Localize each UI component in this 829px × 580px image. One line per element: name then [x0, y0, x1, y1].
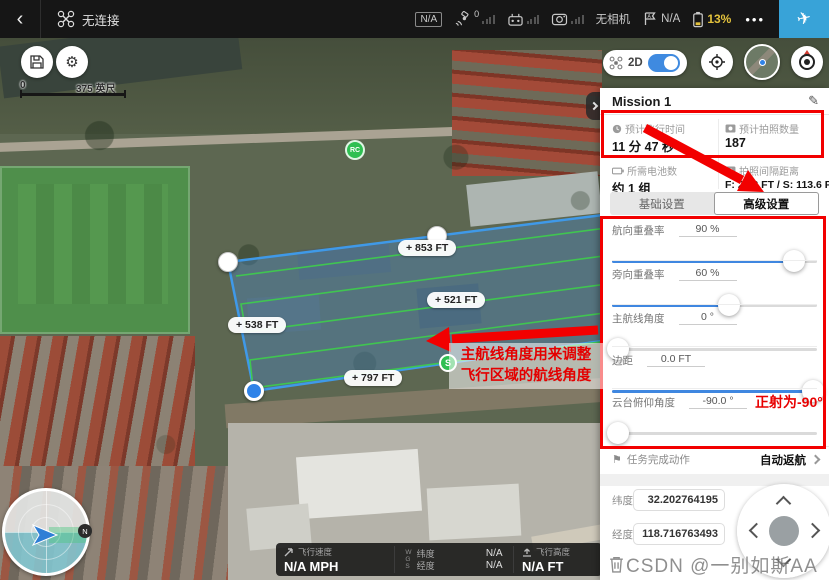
- telemetry-lng-value: N/A: [486, 560, 503, 572]
- divider: [612, 346, 817, 347]
- takeoff-button[interactable]: ✈: [779, 0, 829, 38]
- telemetry-speed: 飞行速度 N/A MPH: [276, 543, 394, 576]
- flight-mode-group: A N/A: [642, 11, 680, 27]
- position-nudge-pad: [737, 484, 829, 578]
- divider: [718, 119, 719, 189]
- locate-button[interactable]: [701, 46, 733, 78]
- telemetry-bar: 飞行速度 N/A MPH WGS 纬度N/A 经度N/A 飞行高度 N/A FT: [276, 543, 602, 576]
- speed-arrow-icon: [284, 547, 294, 557]
- divider-band: [600, 474, 829, 486]
- margin-input[interactable]: 0.0 FT: [647, 353, 705, 367]
- telemetry-coords: WGS 纬度N/A 经度N/A: [395, 543, 513, 576]
- map-2d-toggle[interactable]: [648, 54, 680, 72]
- minimap-position-dot: [759, 59, 766, 66]
- flag-icon: ⚑: [612, 453, 622, 466]
- crosshair-icon: [708, 53, 726, 71]
- front-overlap-input[interactable]: 90 %: [679, 223, 737, 237]
- photo-icon: [725, 166, 736, 175]
- gps-signal-bars: [482, 14, 495, 24]
- save-button[interactable]: [21, 46, 53, 78]
- camera-signal-group: [551, 12, 584, 26]
- route-start-marker: S: [439, 354, 457, 372]
- compass-orientation-button[interactable]: [791, 46, 823, 78]
- connection-status: 无连接: [82, 10, 120, 29]
- wgs-label: WGS: [405, 549, 411, 570]
- photo-count-label: 预计拍照数量: [725, 121, 799, 136]
- mission-header: Mission 1 ✎: [600, 88, 829, 115]
- route-angle-input[interactable]: 0 °: [679, 311, 737, 325]
- gimbal-annotation: 正射为-90°: [755, 392, 823, 412]
- gear-icon: ⚙: [65, 53, 78, 71]
- flight-time-value: 11 分 47 秒: [612, 136, 675, 155]
- camera-icon: [551, 12, 568, 26]
- setting-row-gimbal-pitch: 云台俯仰角度 -90.0 ° 正射为-90°: [600, 394, 829, 444]
- orientation-ring-icon: [799, 54, 815, 70]
- gps-signal-group: 0: [454, 11, 495, 28]
- flight-mode-value: N/A: [661, 13, 680, 25]
- tab-basic-settings[interactable]: 基础设置: [610, 192, 714, 215]
- chevron-right-icon: [589, 102, 597, 110]
- finish-action-label: 任务完成动作: [627, 452, 690, 467]
- rc-signal-bars: [527, 14, 540, 24]
- camera-signal-bars: [571, 14, 584, 24]
- polygon-vertex-handle-selected[interactable]: [244, 381, 264, 401]
- top-status-bar: ‹ 无连接 N/A 0: [0, 0, 829, 38]
- setting-label: 航向重叠率: [612, 223, 665, 238]
- setting-label: 边距: [612, 353, 633, 368]
- divider: [40, 0, 41, 38]
- clock-icon: [612, 124, 622, 134]
- finish-action-value: 自动返航: [760, 452, 806, 468]
- slider-knob[interactable]: [607, 422, 629, 444]
- latitude-input[interactable]: 32.202764195: [633, 489, 725, 511]
- setting-label: 主航线角度: [612, 311, 665, 326]
- camera-status: 无相机: [596, 11, 631, 27]
- longitude-input[interactable]: 118.716763493: [633, 523, 725, 545]
- settings-tabs: 基础设置 高级设置: [610, 192, 819, 215]
- speed-value: N/A MPH: [284, 559, 386, 574]
- nudge-up-button[interactable]: [778, 498, 789, 509]
- mission-stats: 预计飞行时间 11 分 47 秒 预计拍照数量 187 所需电池数 约 1 组 …: [600, 115, 829, 193]
- edit-mission-button[interactable]: ✎: [808, 93, 819, 109]
- drone-map-icon: [609, 56, 623, 70]
- altitude-value: N/A FT: [522, 559, 570, 574]
- back-button[interactable]: ‹: [0, 0, 40, 38]
- nudge-center-button[interactable]: [769, 516, 799, 546]
- finish-action-row[interactable]: ⚑ 任务完成动作 自动返航: [600, 446, 829, 472]
- rc-signal-group: [507, 12, 540, 27]
- drone-icon: [57, 10, 75, 28]
- chevron-up-icon: [776, 496, 792, 512]
- toggle-knob: [664, 56, 678, 70]
- mission-title: Mission 1: [612, 94, 671, 109]
- nudge-down-button[interactable]: [778, 554, 789, 565]
- edge-distance-label: + 853 FT: [398, 240, 456, 256]
- photo-icon: [725, 124, 736, 133]
- photo-count-value: 187: [725, 136, 746, 150]
- settings-button[interactable]: ⚙: [56, 46, 88, 78]
- chevron-right-icon: [805, 523, 821, 539]
- rc-location-marker: RC: [345, 140, 365, 160]
- map-scale-bar: [20, 93, 126, 96]
- chevron-down-icon: [776, 552, 792, 568]
- setting-row-front-overlap: 航向重叠率 90 %: [600, 222, 829, 272]
- panel-collapse-handle[interactable]: [586, 92, 601, 120]
- divider: [612, 388, 817, 389]
- flight-mode-icon: A: [642, 11, 658, 27]
- telemetry-lat-value: N/A: [486, 548, 503, 560]
- remote-controller-icon: [507, 12, 524, 27]
- latitude-label: 纬度: [612, 493, 633, 508]
- battery-icon: [692, 11, 704, 28]
- telemetry-altitude: 飞行高度 N/A FT: [514, 543, 578, 576]
- tab-advanced-settings[interactable]: 高级设置: [714, 192, 820, 215]
- battery-pack-icon: [612, 167, 624, 175]
- more-button[interactable]: •••: [731, 12, 779, 27]
- setting-row-side-overlap: 旁向重叠率 60 %: [600, 266, 829, 316]
- minimap-button[interactable]: [744, 44, 780, 80]
- edge-distance-label: + 521 FT: [427, 292, 485, 308]
- battery-group: 13%: [692, 11, 731, 28]
- link-quality-badge: N/A: [415, 12, 442, 27]
- chevron-left-icon: [749, 523, 765, 539]
- compass-north-badge: N: [78, 524, 92, 538]
- map-mode-label: 2D: [628, 57, 643, 69]
- satellite-icon: [454, 11, 471, 28]
- map-mode-pill: 2D: [603, 50, 687, 76]
- polygon-vertex-handle[interactable]: [218, 252, 238, 272]
- edge-distance-label: + 797 FT: [344, 370, 402, 386]
- interval-label: 拍照间隔距离: [725, 163, 799, 178]
- satellite-count: 0: [474, 9, 479, 19]
- setting-label: 旁向重叠率: [612, 267, 665, 282]
- altitude-icon: [522, 547, 532, 557]
- gimbal-pitch-input[interactable]: -90.0 °: [689, 395, 747, 409]
- flight-time-label: 预计飞行时间: [612, 121, 685, 136]
- longitude-label: 经度: [612, 527, 633, 542]
- battery-percent: 13%: [707, 12, 731, 26]
- side-overlap-input[interactable]: 60 %: [679, 267, 737, 281]
- nudge-left-button[interactable]: [751, 525, 762, 536]
- interval-value: F: 21.3 FT / S: 113.6 FT: [725, 179, 829, 191]
- battery-count-label: 所需电池数: [612, 163, 677, 178]
- setting-label: 云台俯仰角度: [612, 395, 675, 410]
- divider: [612, 260, 817, 261]
- gimbal-pitch-slider[interactable]: [612, 422, 817, 444]
- divider: [608, 157, 821, 158]
- nudge-right-button[interactable]: [807, 525, 818, 536]
- save-icon: [29, 54, 45, 70]
- aircraft-heading-icon: [5, 491, 90, 576]
- takeoff-plane-icon: ✈: [795, 8, 813, 31]
- attitude-compass-widget[interactable]: [2, 488, 90, 576]
- edge-distance-label: + 538 FT: [228, 317, 286, 333]
- divider: [612, 304, 817, 305]
- chevron-right-icon: [811, 455, 821, 465]
